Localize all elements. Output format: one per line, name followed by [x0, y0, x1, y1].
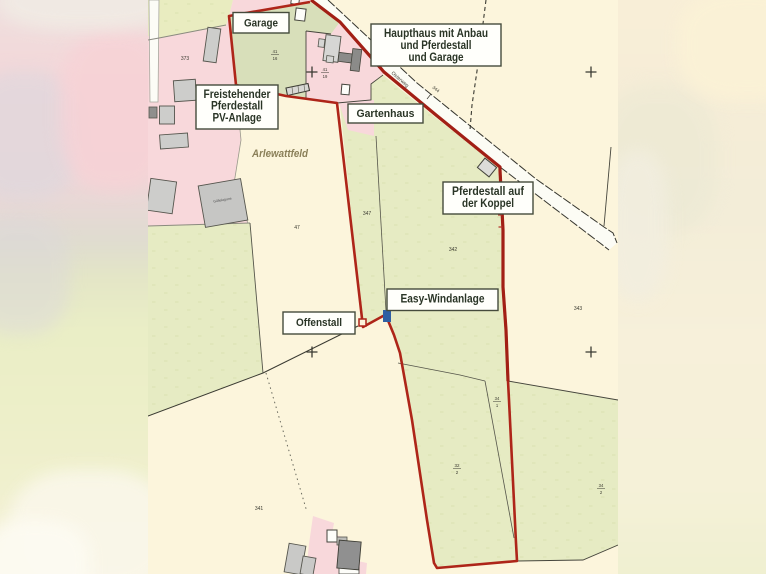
svg-text:341: 341: [255, 506, 264, 512]
svg-text:Pferdestall auf: Pferdestall auf: [452, 186, 524, 198]
svg-text:347: 347: [363, 211, 372, 217]
svg-text:der Koppel: der Koppel: [462, 198, 514, 210]
svg-text:Offenstall: Offenstall: [296, 317, 342, 329]
svg-text:32: 32: [454, 463, 460, 468]
svg-text:Gartenhaus: Gartenhaus: [357, 108, 415, 120]
svg-text:16: 16: [273, 56, 278, 61]
svg-text:PV-Anlage: PV-Anlage: [213, 110, 262, 124]
svg-text:Arlewattfeld: Arlewattfeld: [251, 148, 308, 160]
svg-text:34: 34: [599, 483, 604, 488]
svg-text:373: 373: [181, 56, 190, 62]
svg-text:47: 47: [294, 225, 300, 231]
svg-text:343: 343: [574, 306, 583, 312]
svg-text:41: 41: [323, 67, 328, 72]
svg-text:41: 41: [273, 49, 278, 54]
svg-text:Garage: Garage: [244, 17, 278, 29]
svg-text:Easy-Windanlage: Easy-Windanlage: [401, 294, 485, 306]
svg-text:19: 19: [323, 74, 328, 79]
svg-text:und Garage: und Garage: [409, 50, 464, 64]
svg-text:342: 342: [449, 247, 458, 253]
svg-text:34: 34: [495, 396, 500, 401]
